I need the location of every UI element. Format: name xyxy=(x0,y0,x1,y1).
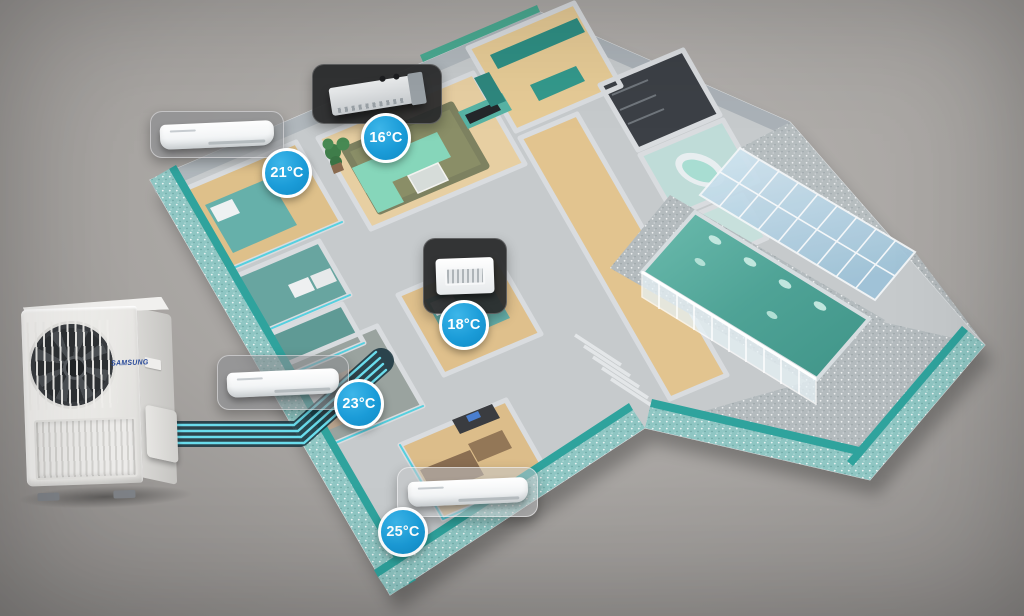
outdoor-unit-lower-grille xyxy=(34,417,138,481)
temp-badge-study: 25°C xyxy=(378,507,428,557)
cassette-grille xyxy=(445,266,486,285)
wall-mounted-unit-icon xyxy=(227,368,340,398)
duct-knob xyxy=(393,73,400,80)
samsung-logo: SAMSUNG xyxy=(111,357,143,367)
ceiling-cassette-unit-icon xyxy=(435,257,494,295)
concealed-duct-unit-icon xyxy=(328,74,423,116)
pipe-cover-box xyxy=(145,405,178,464)
callout-wall-unit-25 xyxy=(397,467,538,517)
fan-guard-grille xyxy=(26,319,117,410)
temp-badge-bedroom-upper: 21°C xyxy=(262,148,312,198)
wall-mounted-unit-icon xyxy=(160,120,275,150)
callout-wall-unit-23 xyxy=(217,355,349,410)
temp-badge-bedroom-lower: 23°C xyxy=(334,379,384,429)
outdoor-unit: SAMSUNG xyxy=(21,293,180,498)
temp-badge-bedroom-center: 18°C xyxy=(439,300,489,350)
hvac-home-illustration: SAMSUNG 16°C 21°C 18°C 23°C 25°C xyxy=(0,0,1024,616)
temp-badge-living: 16°C xyxy=(361,113,411,163)
callout-wall-unit-21 xyxy=(150,111,284,158)
unit-foot xyxy=(113,490,135,499)
unit-foot xyxy=(37,492,59,501)
wall-mounted-unit-icon xyxy=(407,477,528,507)
duct-knob xyxy=(379,75,386,82)
